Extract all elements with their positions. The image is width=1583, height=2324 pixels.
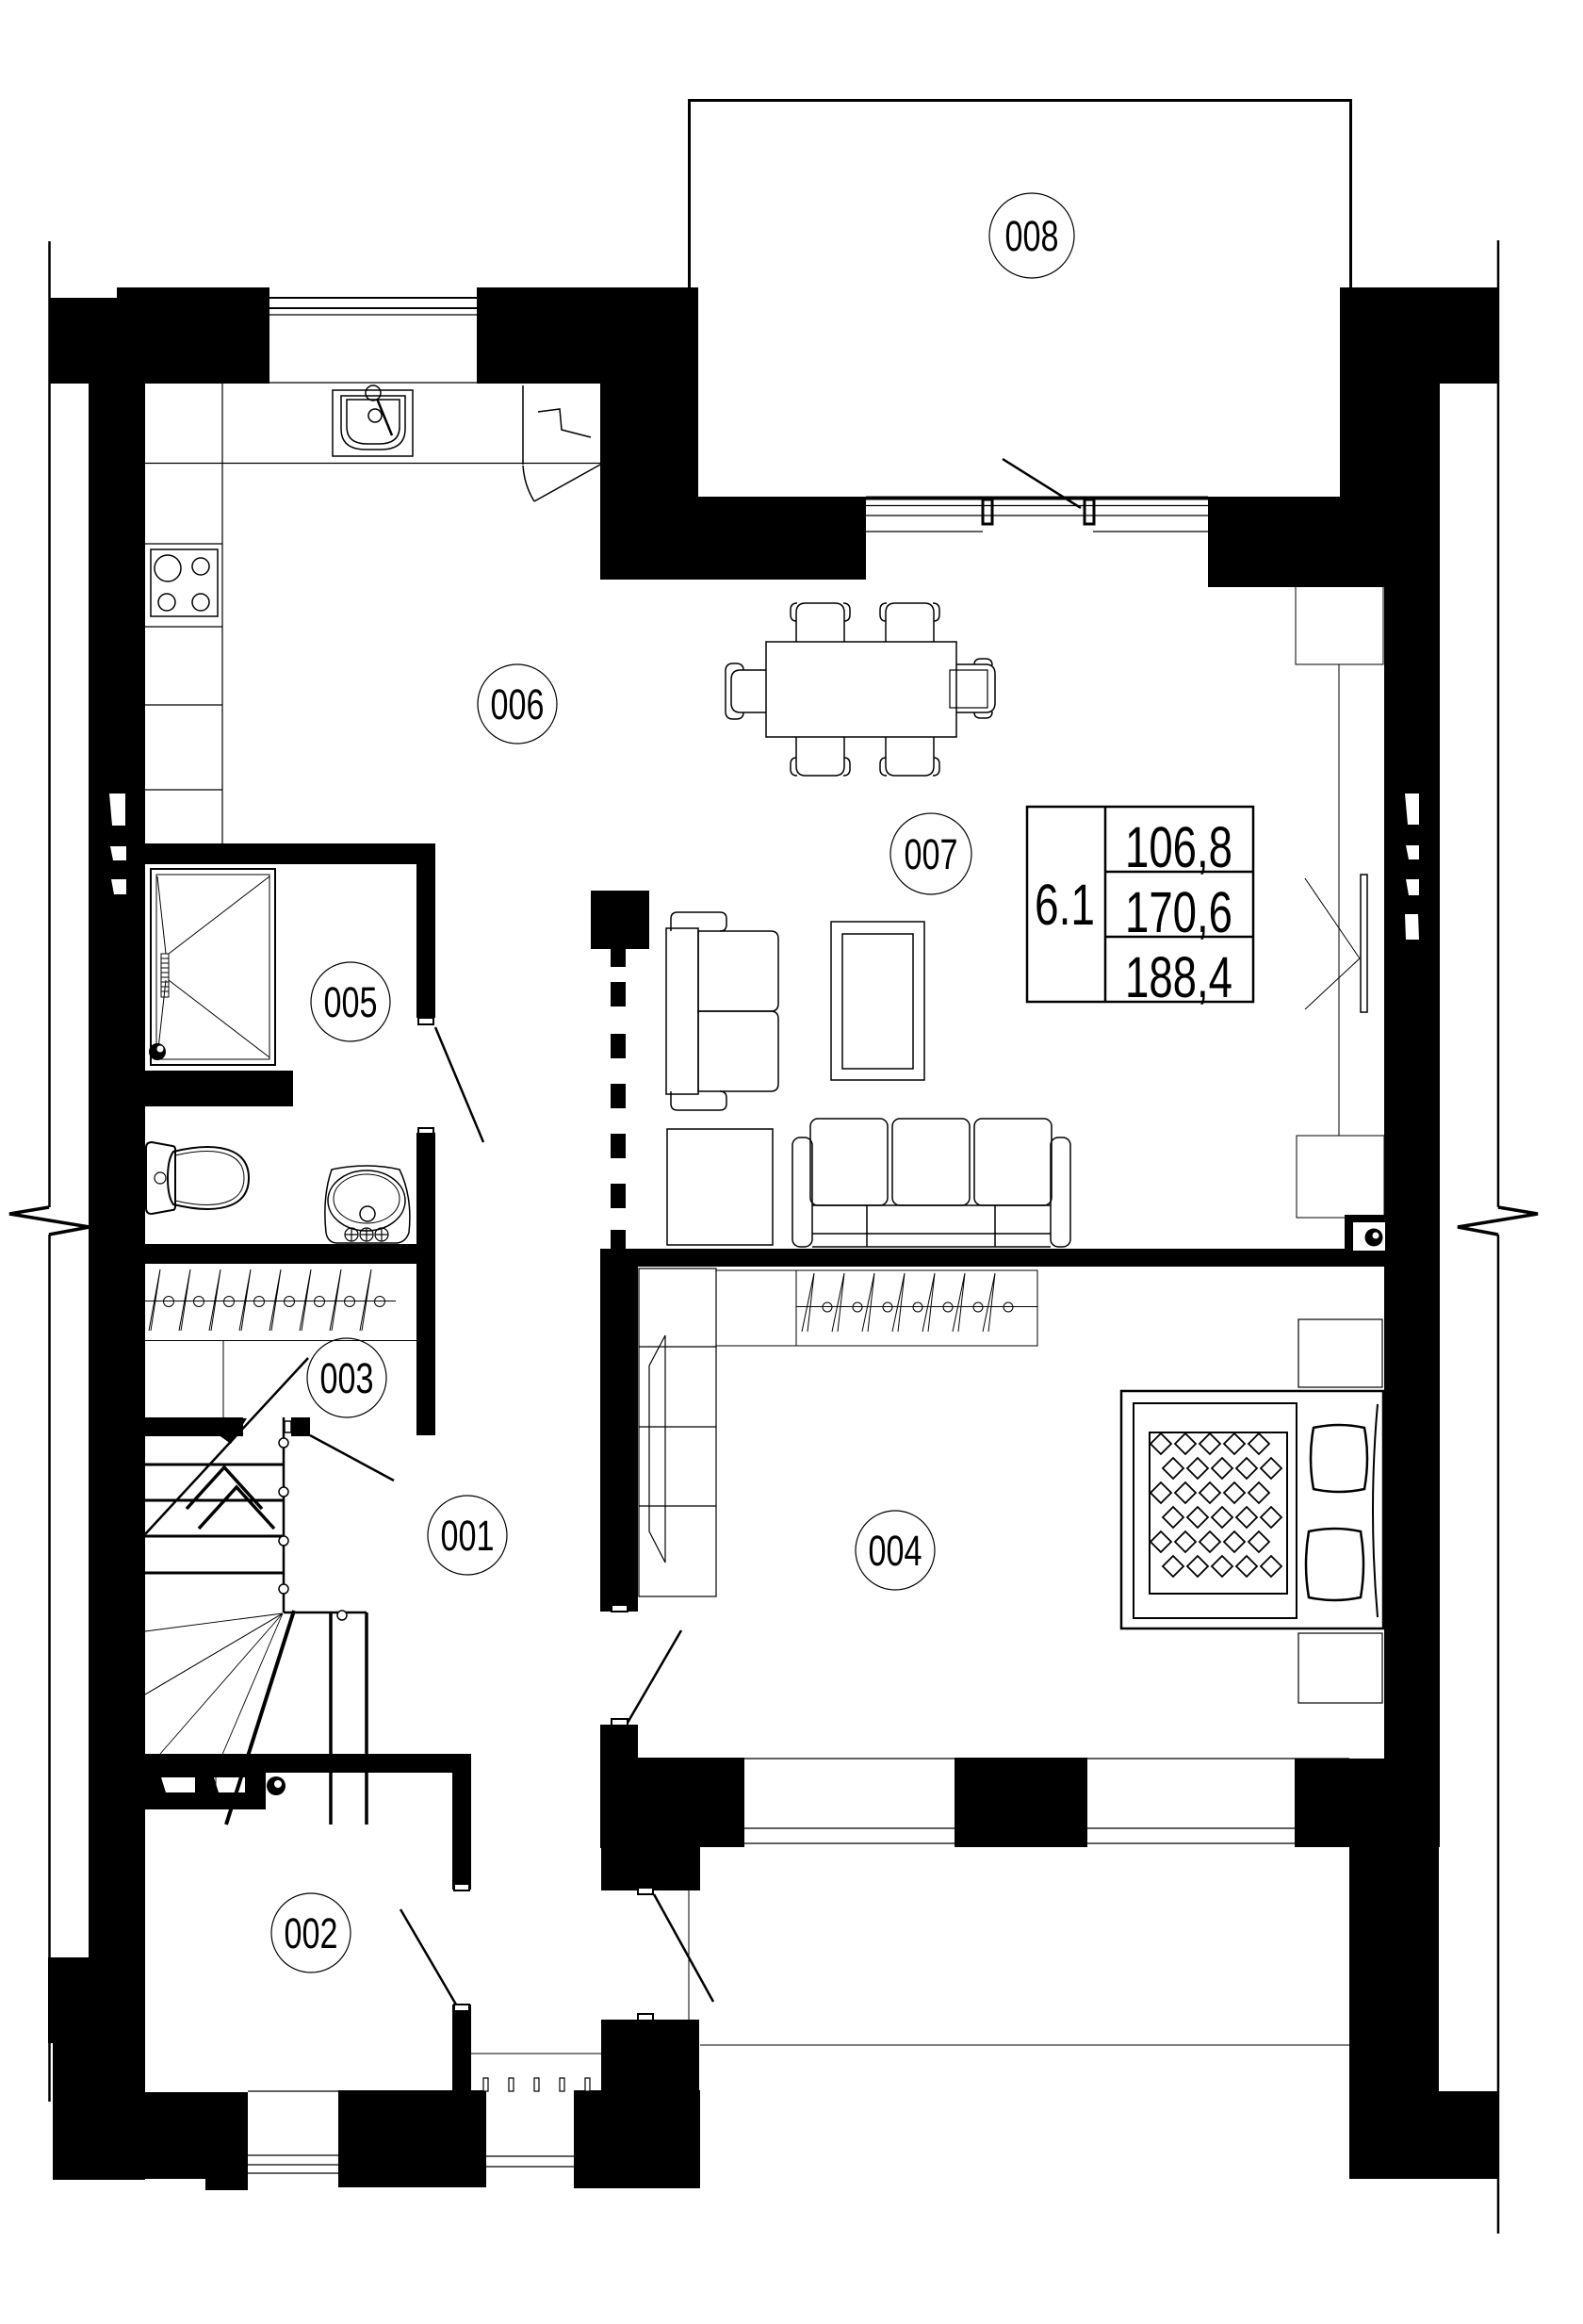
svg-text:106,8: 106,8: [1125, 815, 1232, 879]
svg-text:002: 002: [285, 1909, 338, 1957]
svg-text:008: 008: [1005, 212, 1059, 260]
svg-text:170,6: 170,6: [1125, 880, 1232, 944]
svg-text:005: 005: [324, 978, 378, 1026]
svg-text:6.1: 6.1: [1035, 873, 1095, 937]
svg-text:007: 007: [905, 830, 958, 878]
svg-text:188,4: 188,4: [1125, 945, 1232, 1009]
svg-text:004: 004: [869, 1527, 922, 1575]
svg-text:006: 006: [491, 680, 545, 728]
svg-text:001: 001: [441, 1512, 495, 1560]
svg-text:003: 003: [320, 1354, 374, 1402]
